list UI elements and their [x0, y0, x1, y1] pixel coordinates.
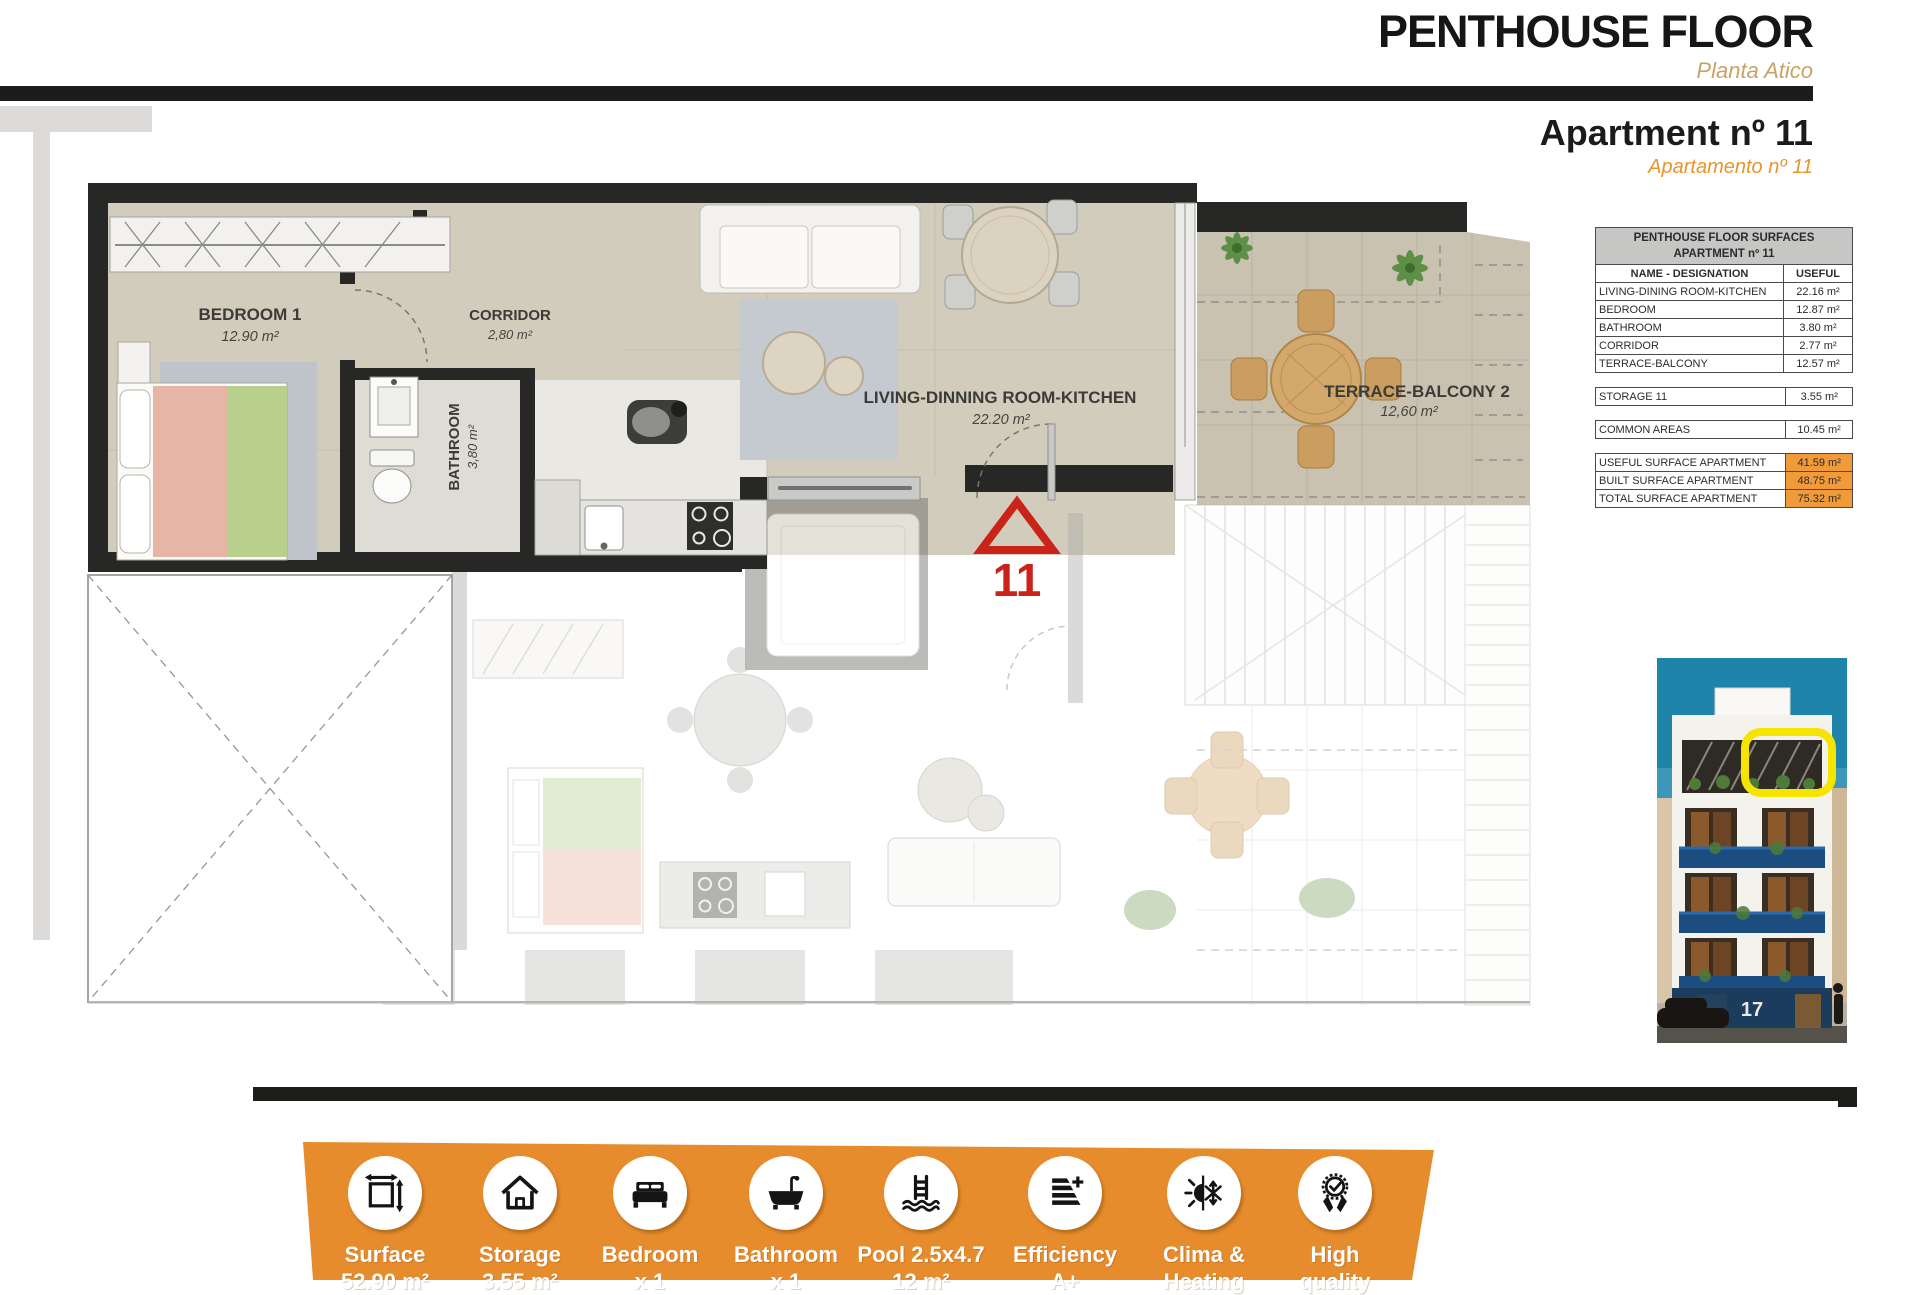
table-row: BUILT SURFACE APARTMENT48.75 m²: [1596, 472, 1853, 490]
corridor-label: CORRIDOR: [469, 307, 551, 324]
clima-heating-icon: [1167, 1156, 1241, 1230]
banner-item-clima: Clima & Heating: [1129, 1156, 1279, 1295]
banner-item-efficiency: Efficiency A+: [990, 1156, 1140, 1295]
page-subtitle: Planta Atico: [1696, 58, 1813, 84]
bedroom1-area: 12.90 m²: [221, 329, 279, 345]
banner-item-surface: Surface 52.90 m²: [310, 1156, 460, 1295]
living-label: LIVING-DINNING ROOM-KITCHEN: [864, 388, 1137, 407]
header-divider-bar: [0, 86, 1813, 101]
feature-banner: Surface 52.90 m² Storage 3.55 m² Bedroom…: [0, 1138, 1920, 1280]
toilet: [370, 450, 414, 503]
banner-item-bathroom: Bathroom x 1: [711, 1156, 861, 1295]
bathroom-icon: [749, 1156, 823, 1230]
footer-divider-step: [1838, 1100, 1857, 1107]
coffee-table-small: [825, 357, 863, 395]
table-row: BEDROOM12.87 m²: [1596, 301, 1853, 319]
efficiency-icon: [1028, 1156, 1102, 1230]
faded-lower-floor: [383, 498, 1530, 1005]
table-row: COMMON AREAS10.45 m²: [1596, 421, 1853, 439]
wardrobe: [110, 217, 450, 272]
col-name: NAME - DESIGNATION: [1596, 265, 1784, 283]
bedroom1-label: BEDROOM 1: [199, 305, 302, 324]
faded-stairs-a: [1185, 505, 1465, 705]
apartment-title: Apartment nº 11: [1540, 112, 1813, 154]
table-row: TOTAL SURFACE APARTMENT75.32 m²: [1596, 490, 1853, 508]
faded-bed: [508, 768, 643, 933]
terrace-label: TERRACE-BALCONY 2: [1324, 382, 1510, 401]
table-row: STORAGE 113.55 m²: [1596, 388, 1853, 406]
corridor-area: 2,80 m²: [487, 327, 533, 342]
table-row: TERRACE-BALCONY12.57 m²: [1596, 355, 1853, 373]
table-row: USEFUL SURFACE APARTMENT41.59 m²: [1596, 454, 1853, 472]
table-row: BATHROOM3.80 m²: [1596, 319, 1853, 337]
table-row: CORRIDOR2.77 m²: [1596, 337, 1853, 355]
bathroom-label: BATHROOM: [446, 403, 463, 490]
washbasin: [370, 377, 418, 437]
terrace-open-corner: [1467, 183, 1530, 242]
terrace-area: 12,60 m²: [1380, 404, 1438, 420]
pedestrian-silhouette: [1833, 983, 1843, 1024]
table-title-2: APARTMENT nº 11: [1673, 248, 1774, 260]
storage-table: STORAGE 113.55 m²: [1595, 387, 1853, 406]
corner-decoration-vertical: [33, 130, 50, 940]
surfaces-main-table: PENTHOUSE FLOOR SURFACES APARTMENT nº 11…: [1595, 227, 1853, 373]
table-row: LIVING-DINING ROOM-KITCHEN22.16 m²: [1596, 283, 1853, 301]
banner-item-pool: Pool 2.5x4.7 12 m²: [846, 1156, 996, 1295]
living-area: 22.20 m²: [971, 412, 1030, 428]
building-render: 17: [1657, 658, 1847, 1043]
banner-item-quality: High quality: [1260, 1156, 1410, 1295]
footer-divider-bar: [253, 1087, 1857, 1101]
surfaces-table: PENTHOUSE FLOOR SURFACES APARTMENT nº 11…: [1595, 227, 1853, 508]
summary-table: USEFUL SURFACE APARTMENT41.59 m² BUILT S…: [1595, 453, 1853, 508]
banner-item-storage: Storage 3.55 m²: [445, 1156, 595, 1295]
bathroom-area: 3,80 m²: [465, 424, 480, 469]
table-title-1: PENTHOUSE FLOOR SURFACES: [1634, 232, 1815, 244]
terrace-window: [1175, 203, 1195, 500]
floor-plan: BEDROOM 1 12.90 m² CORRIDOR 2,80 m² BATH…: [65, 150, 1540, 1020]
sofa: [700, 205, 920, 293]
page-title: PENTHOUSE FLOOR: [1378, 6, 1813, 58]
surface-icon: [348, 1156, 422, 1230]
apartment-subtitle: Apartamento nº 11: [1648, 156, 1813, 179]
banner-item-bedroom: Bedroom x 1: [575, 1156, 725, 1295]
col-useful: USEFUL: [1784, 265, 1853, 283]
bedroom-icon: [613, 1156, 687, 1230]
unit-marker-number: 11: [993, 554, 1042, 606]
pool-icon: [884, 1156, 958, 1230]
corner-decoration-horizontal: [0, 106, 152, 132]
faded-stairs-b: [1465, 505, 1530, 1005]
entry-door-leaf: [1048, 424, 1055, 500]
roof-dashed-area: [88, 575, 452, 1002]
storage-icon: [483, 1156, 557, 1230]
common-areas-table: COMMON AREAS10.45 m²: [1595, 420, 1853, 439]
faded-plants: [1124, 878, 1355, 930]
dining-table: [943, 200, 1079, 309]
armchair: [627, 400, 687, 444]
high-quality-icon: [1298, 1156, 1372, 1230]
building-number: 17: [1741, 999, 1763, 1021]
coffee-table: [763, 332, 825, 394]
plan-bottom-line: [88, 1001, 1530, 1004]
